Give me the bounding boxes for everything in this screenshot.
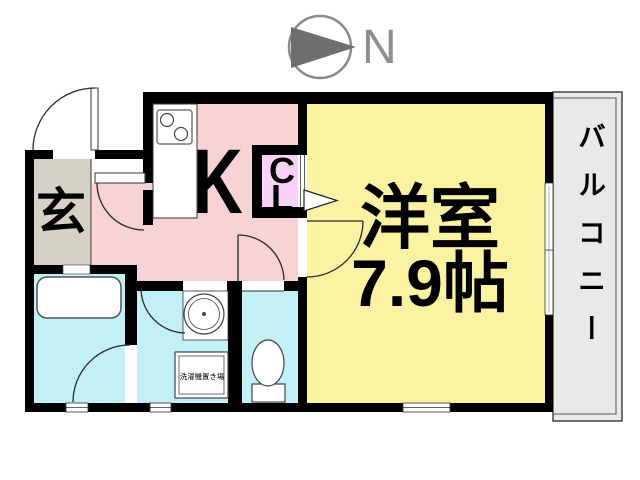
wall — [25, 403, 553, 412]
wall — [25, 265, 63, 274]
wall — [143, 92, 553, 104]
stove-burner — [175, 128, 188, 141]
wall — [125, 265, 137, 345]
wall — [545, 315, 553, 403]
wall — [137, 281, 183, 291]
wall — [25, 150, 34, 412]
entrance-door-arc — [33, 88, 95, 150]
hall-door-leaf — [95, 173, 145, 183]
entrance-label: 玄 — [36, 187, 86, 237]
toilet-bowl — [252, 340, 284, 386]
room-size-label: 7.9帖 — [295, 250, 565, 316]
balcony-label: バルコニー — [572, 122, 604, 362]
entrance-door-leaf — [91, 88, 98, 150]
wall — [298, 92, 307, 147]
stove-burner — [161, 114, 174, 127]
north-label: N — [362, 24, 397, 72]
wall — [143, 190, 153, 225]
wall — [228, 281, 242, 403]
wall — [143, 92, 153, 183]
wall — [25, 150, 53, 159]
wall — [95, 150, 143, 159]
kitchen-label: K — [193, 147, 243, 217]
washbasin-drain — [202, 312, 206, 316]
entrance-hall-opening — [63, 265, 90, 274]
room-name-label: 洋室 — [295, 183, 565, 253]
compass — [289, 16, 356, 78]
wall — [545, 104, 553, 183]
toilet-tank — [252, 384, 285, 402]
floor-plan-page: 玄 K C L 洋室 7.9帖 バルコニー 洗濯機置き場 N — [0, 0, 640, 480]
laundry-label: 洗濯機置き場 — [176, 372, 228, 381]
bathtub — [37, 277, 121, 318]
